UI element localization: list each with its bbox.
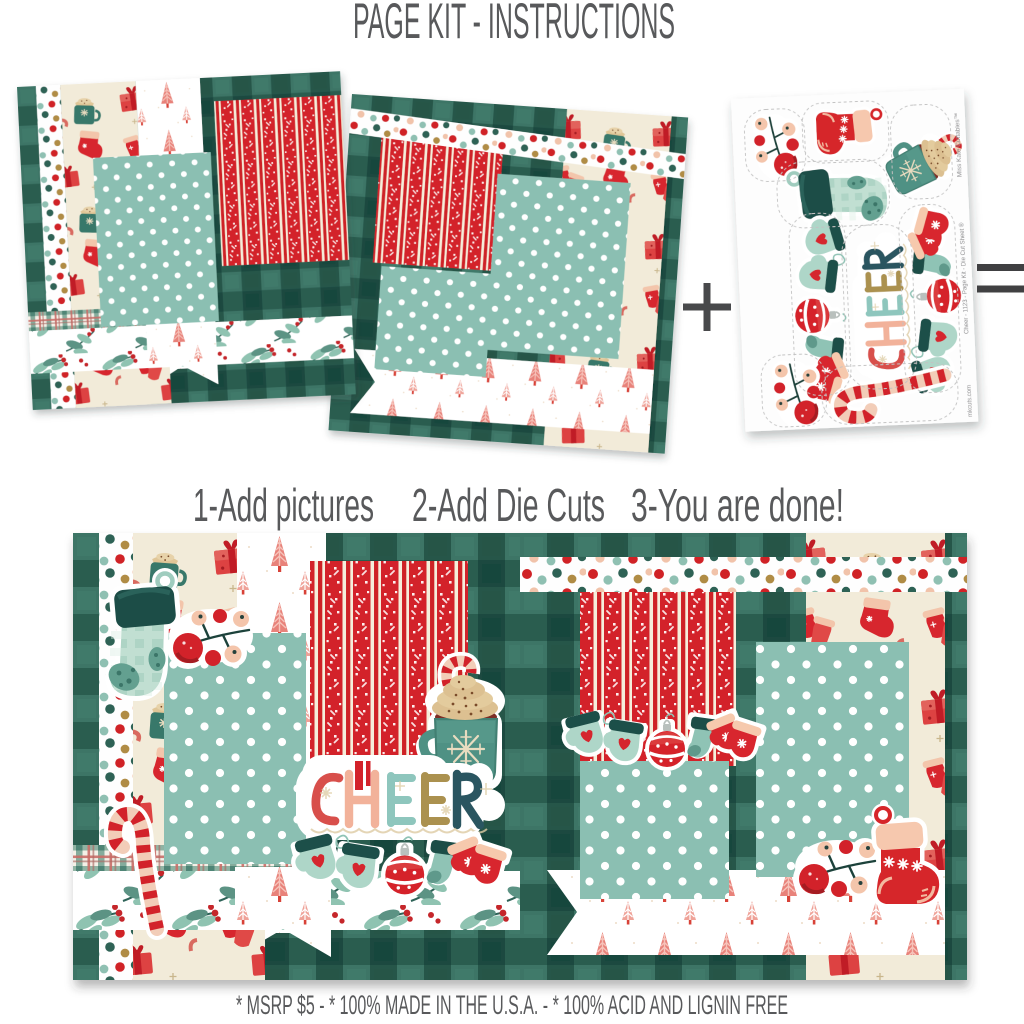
svg-text:PAGE KIT - INSTRUCTIONS: PAGE KIT - INSTRUCTIONS: [353, 0, 675, 49]
svg-text:* MSRP $5 - * 100% MADE IN T: * MSRP $5 - * 100% MADE IN THE U.S.A. - …: [236, 990, 788, 1020]
svg-text:1-Add pictures: 1-Add pictures: [193, 479, 374, 531]
svg-text:3-You are done!: 3-You are done!: [631, 479, 844, 531]
svg-text:2-Add Die Cuts: 2-Add Die Cuts: [412, 479, 605, 531]
